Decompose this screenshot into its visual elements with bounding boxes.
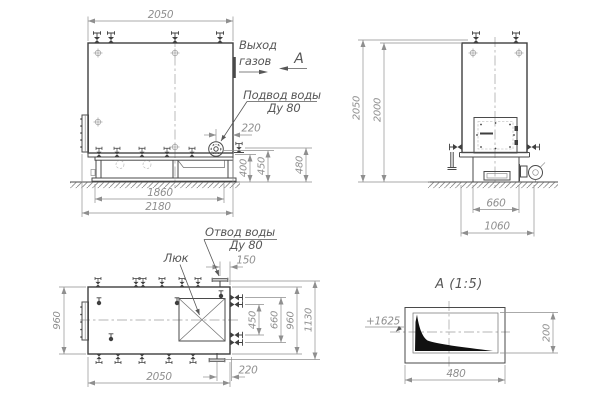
door-hinge xyxy=(515,140,519,145)
front-labels: Выход газов А Подвод воды Ду 80 xyxy=(221,38,321,141)
plan-bottom-valves xyxy=(96,354,196,364)
front-door-flange xyxy=(80,115,88,152)
lifting-mark-icon xyxy=(171,49,180,58)
boiler-drawing: 2050 220 400 450 480 1860 2180 Выход газ… xyxy=(0,0,600,400)
view-a-mark: А xyxy=(293,51,304,67)
front-view: 2050 220 400 450 480 1860 2180 Выход газ… xyxy=(70,9,321,217)
level-mark-value: +1625 xyxy=(366,316,401,328)
drain-valves-front xyxy=(96,147,195,157)
gas-outlet-stub xyxy=(233,57,236,78)
lifting-mark-icon xyxy=(94,118,103,127)
ground-hatch-side xyxy=(428,183,558,189)
support-frame-front xyxy=(91,157,236,181)
dim-valve-height: 480 xyxy=(295,156,306,174)
frame-bracket xyxy=(91,170,95,176)
dim-nozzle-span-inner: 450 xyxy=(248,311,259,329)
dim-opening-width: 480 xyxy=(446,368,466,380)
base-box-side xyxy=(473,157,519,182)
water-drain-flange-icon xyxy=(212,278,228,287)
water-supply-flange-icon xyxy=(209,142,224,157)
section-title: А (1:5) xyxy=(434,277,483,292)
dim-plan-length: 2050 xyxy=(146,371,172,383)
gas-outlet-label: Выход xyxy=(239,38,277,52)
furnace-door xyxy=(474,118,518,154)
dim-overall-span: 1130 xyxy=(304,308,315,332)
lifting-mark-icon xyxy=(515,49,524,58)
side-view: 2050 2000 660 1060 xyxy=(352,31,559,236)
dim-plan-width-left: 960 xyxy=(52,311,63,329)
water-drain-label-2: Ду 80 xyxy=(228,238,262,252)
door-hinge xyxy=(515,126,519,131)
view-a-arrow-icon xyxy=(279,66,288,70)
gas-outlet-label-2: газов xyxy=(239,54,271,68)
drain-pipe xyxy=(448,152,457,170)
dim-flange-height: 450 xyxy=(257,157,268,175)
section-view-a: А (1:5) 200 480 +1625 xyxy=(365,277,558,384)
boiler-shell-front xyxy=(88,43,233,153)
water-supply-label: Подвод воды xyxy=(243,88,321,102)
side-valve-left-icon xyxy=(450,144,463,150)
dim-base-height: 400 xyxy=(239,159,250,177)
dim-drain-offset: 150 xyxy=(236,255,256,267)
plan-dimensions: 960 150 450 660 960 1130 2050 220 xyxy=(52,255,320,388)
dim-flange-offset: 220 xyxy=(241,123,261,135)
dim-total-length: 2180 xyxy=(145,201,171,213)
water-supply-label-2: Ду 80 xyxy=(266,101,300,115)
fuel-trough xyxy=(178,160,225,167)
technical-drawing-canvas: 2050 220 400 450 480 1860 2180 Выход газ… xyxy=(0,0,600,400)
level-mark: +1625 xyxy=(365,316,404,332)
plan-door-flange xyxy=(80,302,88,340)
dim-overall-width: 1060 xyxy=(484,221,510,233)
side-nozzle-valve-icon xyxy=(236,142,242,153)
lifting-mark-icon xyxy=(171,143,180,152)
plan-view: 960 150 450 660 960 1130 2050 220 Отвод … xyxy=(52,225,320,387)
boiler-shell-plan xyxy=(88,287,230,354)
dim-frame-length: 1860 xyxy=(147,187,173,199)
dim-opening-height: 200 xyxy=(542,324,553,342)
lifting-mark-icon xyxy=(94,49,103,58)
dim-nozzle-span-outer: 660 xyxy=(270,311,281,329)
side-valve-right-icon xyxy=(527,144,540,150)
lifting-mark-icon xyxy=(469,49,478,58)
dim-front-width: 2050 xyxy=(148,9,174,21)
top-valve-icon xyxy=(513,31,520,43)
top-valve-icon xyxy=(473,31,480,43)
flow-profile-fill xyxy=(415,315,493,352)
dim-side-body-height: 2000 xyxy=(373,98,384,122)
dim-base-width: 660 xyxy=(486,198,506,210)
burner-fan xyxy=(520,163,546,183)
water-drain-label: Отвод воды xyxy=(205,225,275,239)
gas-flow-arrow-icon xyxy=(259,70,268,74)
top-valves-front xyxy=(94,31,224,43)
dim-plan-width-right: 960 xyxy=(286,311,297,329)
side-dimensions: 2050 2000 660 1060 xyxy=(352,40,535,237)
manhole-label: Люк xyxy=(163,251,189,265)
dim-plan-flange-offset: 220 xyxy=(238,365,258,377)
ash-door xyxy=(484,172,510,181)
dim-side-total-height: 2050 xyxy=(352,96,363,120)
